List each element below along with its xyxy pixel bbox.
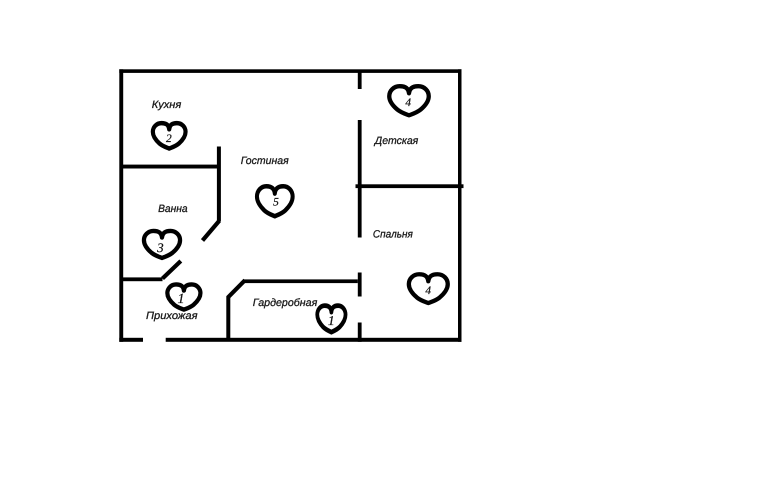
svg-text:1: 1 — [328, 313, 335, 328]
svg-text:2: 2 — [166, 133, 172, 145]
svg-text:Гостиная: Гостиная — [241, 155, 289, 167]
svg-text:Кухня: Кухня — [152, 99, 182, 111]
svg-text:Прихожая: Прихожая — [146, 310, 198, 322]
svg-text:1: 1 — [178, 292, 185, 307]
svg-text:4: 4 — [425, 285, 431, 297]
svg-text:3: 3 — [156, 240, 164, 255]
svg-text:4: 4 — [405, 97, 411, 109]
svg-text:Детская: Детская — [374, 135, 419, 147]
svg-text:Спальня: Спальня — [373, 229, 413, 241]
svg-text:Гардеробная: Гардеробная — [253, 297, 318, 309]
svg-text:5: 5 — [273, 197, 279, 209]
svg-text:Ванна: Ванна — [158, 203, 188, 215]
